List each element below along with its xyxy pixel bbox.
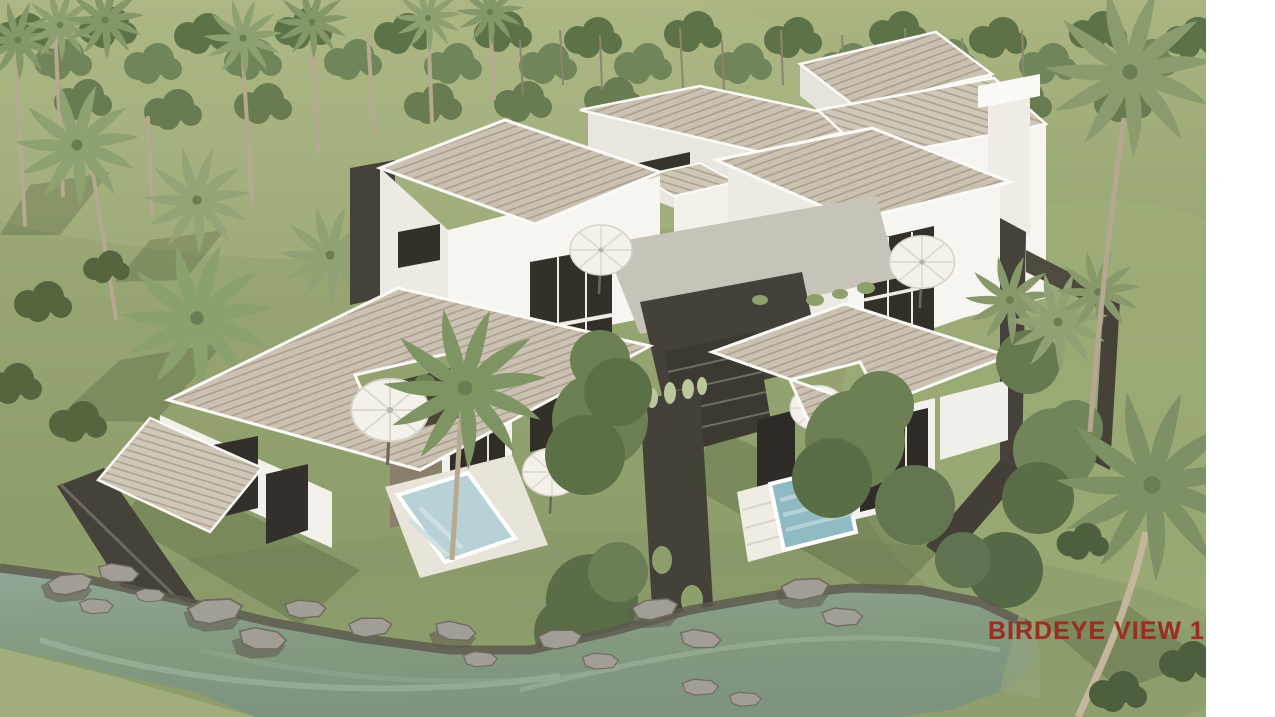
aerial-scene <box>0 0 1206 717</box>
render-page: BIRDEYE VIEW 1 <box>0 0 1275 717</box>
page-margin <box>1206 0 1275 717</box>
view-label: BIRDEYE VIEW 1 <box>988 617 1203 646</box>
aerial-render: BIRDEYE VIEW 1 <box>0 0 1206 717</box>
